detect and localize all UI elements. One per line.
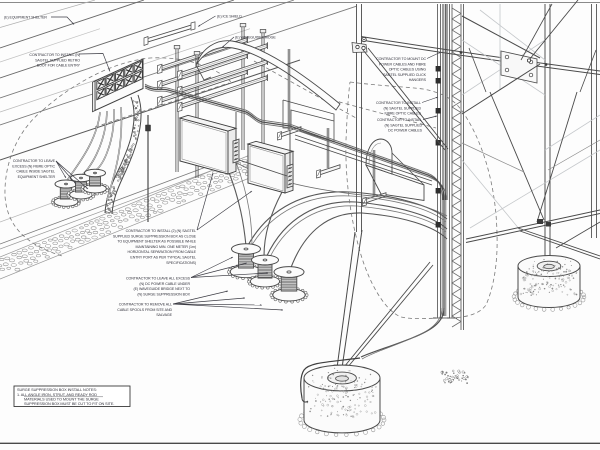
svg-text:(E) ICE SHIELD: (E) ICE SHIELD xyxy=(217,15,242,19)
svg-text:1. ALL ANGLE IRON, STRUT, A: 1. ALL ANGLE IRON, STRUT, AND READY ROD xyxy=(17,393,97,397)
svg-text:HORIZONTAL SEPARATION FROM CAB: HORIZONTAL SEPARATION FROM CABLE xyxy=(127,250,196,254)
svg-text:POWER CABLES AND FIBRE: POWER CABLES AND FIBRE xyxy=(379,62,427,66)
svg-text:SURGE SUPPRESSION BOX INSTALL: SURGE SUPPRESSION BOX INSTALL NOTES: xyxy=(17,388,97,392)
svg-text:CONTRACTOR TO INSTALL: CONTRACTOR TO INSTALL xyxy=(376,101,421,105)
svg-text:EQUIPMENT SHELTER: EQUIPMENT SHELTER xyxy=(18,175,56,179)
svg-text:OPTIC CABLES USING: OPTIC CABLES USING xyxy=(389,68,427,72)
svg-text:(N) SURGE SUPPRESSION BOX: (N) SURGE SUPPRESSION BOX xyxy=(137,292,190,296)
svg-text:CONTRACTOR TO MOUNT DC: CONTRACTOR TO MOUNT DC xyxy=(376,57,426,61)
svg-text:SAGTEL SUPPLIED RETRO: SAGTEL SUPPLIED RETRO xyxy=(35,58,80,62)
svg-text:CONTRACTOR TO INSTALL (N): CONTRACTOR TO INSTALL (N) xyxy=(29,53,80,57)
svg-text:CONTRACTOR TO LEAVE: CONTRACTOR TO LEAVE xyxy=(13,159,56,163)
svg-text:CONTRACTOR TO REMOVE ALL: CONTRACTOR TO REMOVE ALL xyxy=(119,303,172,307)
svg-text:(N) DC POWER CABLE UNDER: (N) DC POWER CABLE UNDER xyxy=(139,282,190,286)
svg-text:FIBRE OPTIC CABLES: FIBRE OPTIC CABLES xyxy=(385,112,422,116)
svg-text:HANGERS: HANGERS xyxy=(409,78,427,82)
svg-text:SPECIFICATIONS): SPECIFICATIONS) xyxy=(166,261,196,265)
svg-text:CONTRACTOR TO INSTALL: CONTRACTOR TO INSTALL xyxy=(377,118,422,122)
svg-text:CONTRACTOR TO LEAVE ALL EXCESS: CONTRACTOR TO LEAVE ALL EXCESS xyxy=(126,277,191,281)
svg-text:ENTRY PORT AS PER TYPICAL SAGT: ENTRY PORT AS PER TYPICAL SAGTEL xyxy=(130,256,196,260)
svg-text:CABLE INSIDE SAGTEL: CABLE INSIDE SAGTEL xyxy=(16,170,55,174)
svg-text:SAGTEL SUPPLIED CLICK: SAGTEL SUPPLIED CLICK xyxy=(383,73,427,77)
svg-text:CABLE SPOOLS FROM SITE AND: CABLE SPOOLS FROM SITE AND xyxy=(117,308,172,312)
svg-text:MATERIALS USED TO MOUNT THE SU: MATERIALS USED TO MOUNT THE SURGE xyxy=(24,398,99,402)
svg-text:(E) WAVEGUIDE BRIDGE NEXT TO: (E) WAVEGUIDE BRIDGE NEXT TO xyxy=(133,287,190,291)
svg-text:(E) EQUIPMENT SHELTER: (E) EQUIPMENT SHELTER xyxy=(4,16,47,20)
svg-text:(N) SAGTEL SUPPLIED: (N) SAGTEL SUPPLIED xyxy=(385,123,423,127)
svg-text:(E) WAVEGUIDE BRIDGE: (E) WAVEGUIDE BRIDGE xyxy=(235,36,276,40)
svg-text:BOOT FOR CABLE ENTRY: BOOT FOR CABLE ENTRY xyxy=(37,64,81,68)
svg-text:TO EQUIPMENT SHELTER AS POSSIB: TO EQUIPMENT SHELTER AS POSSIBLE WHILE xyxy=(117,240,196,244)
svg-text:CONTRACTOR TO INSTALL (2) (N): CONTRACTOR TO INSTALL (2) (N) SAGTEL xyxy=(126,229,196,233)
svg-text:SALVAGE: SALVAGE xyxy=(156,313,172,317)
svg-text:SUPPRESSION BOX MUST BE CUT TO: SUPPRESSION BOX MUST BE CUT TO FIT ON SI… xyxy=(24,402,114,406)
svg-text:(N) SAGTEL SUPPLIED: (N) SAGTEL SUPPLIED xyxy=(384,106,422,110)
svg-text:DC POWER CABLES: DC POWER CABLES xyxy=(388,129,423,133)
svg-text:MAINTAINING MIN. ONE METER (1m: MAINTAINING MIN. ONE METER (1m) xyxy=(136,245,196,249)
svg-text:EXCESS (N) FIBRE OPTIC: EXCESS (N) FIBRE OPTIC xyxy=(12,164,55,168)
svg-text:SUPPLIED SURGE SUPPRESSION BOX: SUPPLIED SURGE SUPPRESSION BOX AS CLOSE xyxy=(113,234,197,238)
